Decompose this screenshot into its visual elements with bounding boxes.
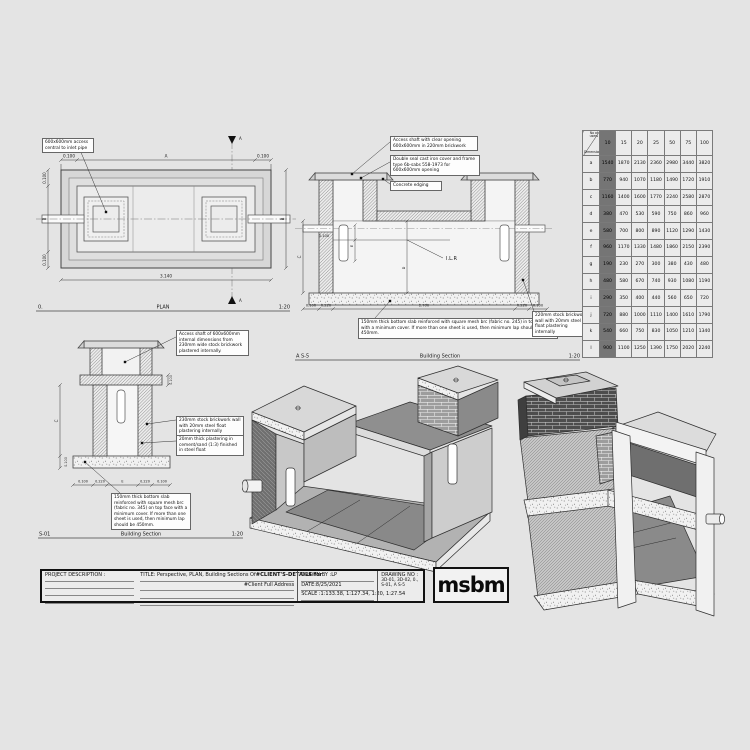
view-title: Building Section xyxy=(420,354,460,360)
table-row: b77094010701180149017201910 xyxy=(583,172,713,189)
section-marker-label: A xyxy=(239,136,242,141)
table-row-label: h xyxy=(583,273,600,290)
dip-pipe-3d xyxy=(448,444,457,484)
dimension-line-left xyxy=(58,383,62,470)
dim-label: C xyxy=(297,255,302,258)
dim-label: 0.220 xyxy=(140,480,150,484)
dimension-line-top xyxy=(59,158,273,170)
table-cell: 740 xyxy=(648,273,664,290)
dim-label: 0.100 xyxy=(169,375,173,385)
table-cell: 1070 xyxy=(632,172,648,189)
table-cell: 1860 xyxy=(664,239,680,256)
table-cell: 800 xyxy=(632,223,648,240)
table-cell: 1340 xyxy=(696,323,712,340)
table-cell: 960 xyxy=(600,239,616,256)
table-row: i290350400440560650720 xyxy=(583,290,713,307)
dim-label: B xyxy=(42,217,47,220)
table-cell: 1190 xyxy=(696,273,712,290)
table-cell: 860 xyxy=(680,206,696,223)
table-column-header: 15 xyxy=(616,131,632,156)
dim-label: D xyxy=(402,266,406,269)
view-title: PLAN xyxy=(156,305,169,311)
table-cell: 1100 xyxy=(616,340,632,357)
logo-text: msbm xyxy=(437,575,504,596)
table-cell: 940 xyxy=(616,172,632,189)
table-cell: 1120 xyxy=(664,223,680,240)
annotation-wall: 230mm stock brickwork wall with 20mm ste… xyxy=(176,416,244,437)
table-cell: 1110 xyxy=(648,307,664,324)
table-cell: 2020 xyxy=(680,340,696,357)
table-cell: 480 xyxy=(696,256,712,273)
sizing-table-grid: No of usersDimensions101520255075100 a15… xyxy=(582,130,713,358)
table-row: k540660750830105012101340 xyxy=(583,323,713,340)
right-wall xyxy=(138,385,152,456)
blank-line xyxy=(45,589,134,596)
table-cell: 670 xyxy=(632,273,648,290)
table-cell: 1400 xyxy=(664,307,680,324)
table-row: e580700800890112012901430 xyxy=(583,223,713,240)
table-cell: 3440 xyxy=(680,156,696,173)
corner-label-users: No of users xyxy=(583,132,598,139)
table-cell: 880 xyxy=(616,307,632,324)
table-cell: 270 xyxy=(632,256,648,273)
corner-label-dimensions: Dimensions xyxy=(584,151,600,154)
annotation-access-shaft: Access shaft with clear opening 600x600m… xyxy=(390,136,478,151)
collar-slab xyxy=(80,375,162,385)
table-column-header: 20 xyxy=(632,131,648,156)
table-cell: 1770 xyxy=(648,189,664,206)
table-cell: 300 xyxy=(648,256,664,273)
table-cell: 2240 xyxy=(696,340,712,357)
table-row-label: c xyxy=(583,189,600,206)
table-cell: 1210 xyxy=(680,323,696,340)
drawing-title: TITLE: Perspective, PLAN, Building Secti… xyxy=(140,572,294,582)
dip-pipe-right xyxy=(500,225,509,261)
view-scale: 1:20 xyxy=(279,305,290,311)
table-cell: 1330 xyxy=(632,239,648,256)
outlet-pipe-3d xyxy=(706,514,725,524)
logo: msbm xyxy=(433,567,509,603)
table-cell: 1910 xyxy=(696,172,712,189)
table-cell: 720 xyxy=(696,290,712,307)
view-ref: 0. xyxy=(38,305,43,311)
table-row: j72088010001110140016101790 xyxy=(583,307,713,324)
table-row-label: j xyxy=(583,307,600,324)
sizing-table-head: No of usersDimensions101520255075100 xyxy=(583,131,713,156)
dip-pipe xyxy=(117,390,125,423)
table-cell: 470 xyxy=(616,206,632,223)
table-cell: 440 xyxy=(648,290,664,307)
table-cell: 1720 xyxy=(680,172,696,189)
dimension-line-bottom xyxy=(71,483,172,487)
annotation-cover: Double seal cast iron cover and frame ty… xyxy=(390,155,480,176)
dim-label: 0.100 xyxy=(64,457,68,467)
dim-label: 3.140 xyxy=(160,274,172,279)
sizing-table: No of usersDimensions101520255075100 a15… xyxy=(582,130,713,358)
table-cell: 1170 xyxy=(616,239,632,256)
table-cell: 1600 xyxy=(632,189,648,206)
table-cell: 1290 xyxy=(680,223,696,240)
dim-label: C xyxy=(54,419,59,422)
dim-label: E xyxy=(121,480,123,484)
dim-label: A xyxy=(165,154,168,159)
table-cell: 580 xyxy=(616,273,632,290)
dim-label: 0.100 xyxy=(306,304,317,308)
table-cell: 1160 xyxy=(600,189,616,206)
dim-label: 0.100 xyxy=(63,154,75,159)
table-cell: 930 xyxy=(664,273,680,290)
section-arrow-icon xyxy=(228,136,236,144)
title-block-title: TITLE: Perspective, PLAN, Building Secti… xyxy=(137,571,297,601)
annotation-bottom-slab: 150mm thick bottom slab reinforced with … xyxy=(111,493,191,530)
left-wall xyxy=(93,385,107,456)
table-cell: 350 xyxy=(616,290,632,307)
title-block-project: PROJECT DESCRIPTION : xyxy=(42,571,137,601)
table-cell: 590 xyxy=(648,206,664,223)
table-row-label: i xyxy=(583,290,600,307)
project-description-label: PROJECT DESCRIPTION : xyxy=(45,572,134,582)
scale: SCALE :1:133.38, 1:127.34, 1:20, 1:27.54 xyxy=(301,591,374,601)
table-row-label: b xyxy=(583,172,600,189)
annotation-access-central: 600x600mm access central to inlet pipe xyxy=(42,138,94,153)
table-cell: 430 xyxy=(680,256,696,273)
cover xyxy=(78,341,164,348)
table-column-header: 100 xyxy=(696,131,712,156)
drawing-title-text: TITLE: Perspective, PLAN, Building Secti… xyxy=(140,572,256,578)
dim-label: 0.100 xyxy=(533,304,544,308)
blank-line xyxy=(140,599,294,606)
table-cell: 540 xyxy=(600,323,616,340)
table-row-label: e xyxy=(583,223,600,240)
dim-label: 0.220 xyxy=(517,304,528,308)
annotation-access-shaft: Access shaft of 600x600mm internal dimen… xyxy=(176,330,249,356)
table-row: g190230270300380430480 xyxy=(583,256,713,273)
table-cell: 750 xyxy=(664,206,680,223)
date: DATE:8/25/2021 xyxy=(301,582,374,592)
dim-label: 0.100 xyxy=(157,480,167,484)
table-cell: 380 xyxy=(600,206,616,223)
table-cell: 1080 xyxy=(680,273,696,290)
table-cell: 1540 xyxy=(600,156,616,173)
client-address: #Client Full Address xyxy=(140,582,294,592)
table-row: h48058067074093010801190 xyxy=(583,273,713,290)
table-column-header: 50 xyxy=(664,131,680,156)
table-row-label: l xyxy=(583,340,600,357)
dimension-line-bottom xyxy=(59,278,273,282)
table-cell: 380 xyxy=(664,256,680,273)
bottom-slab xyxy=(73,456,170,468)
table-cell: 1250 xyxy=(632,340,648,357)
table-row-label: k xyxy=(583,323,600,340)
table-cell: 2390 xyxy=(696,239,712,256)
drawing-sheet: A A 0.100 xyxy=(0,0,750,750)
table-cell: 3820 xyxy=(696,156,712,173)
table-cell: 650 xyxy=(680,290,696,307)
table-cell: 1480 xyxy=(648,239,664,256)
blank-line xyxy=(45,582,134,589)
table-cell: 720 xyxy=(600,307,616,324)
view-ref: A S-5 xyxy=(296,354,309,360)
table-row: l900110012501390175020202240 xyxy=(583,340,713,357)
drawing-no-value: 3D-01, 3D-02, 0., S-01, A S-5 xyxy=(381,578,420,589)
title-block-drawing-no: DRAWING NO : 3D-01, 3D-02, 0., S-01, A S… xyxy=(377,571,423,601)
table-row: a1540187021302360298034403820 xyxy=(583,156,713,173)
blank-line xyxy=(140,591,294,598)
table-cell: 1790 xyxy=(696,307,712,324)
table-row: d380470530590750860960 xyxy=(583,206,713,223)
table-row: f960117013301480186021502390 xyxy=(583,239,713,256)
table-cell: 1430 xyxy=(696,223,712,240)
inlet-pipe-3d xyxy=(242,480,262,492)
perspective-view-2 xyxy=(500,366,740,626)
table-row-label: g xyxy=(583,256,600,273)
table-row-label: f xyxy=(583,239,600,256)
tank-interior xyxy=(333,221,515,293)
table-cell: 2870 xyxy=(696,189,712,206)
table-cell: 530 xyxy=(632,206,648,223)
annotation-bottom-slab: 150mm thick bottom slab reinforced with … xyxy=(358,318,558,339)
table-cell: 900 xyxy=(600,340,616,357)
table-cell: 2130 xyxy=(632,156,648,173)
view-ref: S-01 xyxy=(39,532,50,538)
top-slab xyxy=(377,211,471,221)
table-cell: 830 xyxy=(648,323,664,340)
annotation-edging: Concrete edging xyxy=(390,181,442,191)
table-cell: 1000 xyxy=(632,307,648,324)
table-column-header: 10 xyxy=(600,131,616,156)
table-cell: 1870 xyxy=(616,156,632,173)
annotation-plaster: 20mm thick plastering in cement/sand (1:… xyxy=(176,435,244,456)
dim-label: 0.100 xyxy=(257,154,269,159)
dim-label: 2.700 xyxy=(419,304,430,308)
table-cell: 750 xyxy=(632,323,648,340)
dim-label: 0.100 xyxy=(319,234,330,238)
right-wall xyxy=(515,180,529,293)
dim-label: 0.100 xyxy=(78,480,88,484)
title-block: PROJECT DESCRIPTION : TITLE: Perspective… xyxy=(40,569,425,603)
dimension-line-bottom xyxy=(301,307,549,311)
dim-label: 0.220 xyxy=(321,304,332,308)
table-cell: 960 xyxy=(696,206,712,223)
table-cell: 770 xyxy=(600,172,616,189)
table-column-header: 75 xyxy=(680,131,696,156)
view-scale: 1:20 xyxy=(569,354,580,360)
dip-pipe-3d xyxy=(286,468,295,506)
blank-line xyxy=(45,596,134,603)
dim-label: 0.220 xyxy=(95,480,105,484)
table-column-header: 25 xyxy=(648,131,664,156)
view-title: Building Section xyxy=(121,532,161,538)
table-row-label: a xyxy=(583,156,600,173)
perspective-view-1 xyxy=(242,360,512,575)
table-cell: 480 xyxy=(600,273,616,290)
table-cell: 2150 xyxy=(680,239,696,256)
table-cell: 560 xyxy=(664,290,680,307)
plan-view: A A 0.100 xyxy=(36,128,296,318)
dim-label: 0.100 xyxy=(42,254,47,266)
table-cell: 660 xyxy=(616,323,632,340)
table-cell: 2580 xyxy=(680,189,696,206)
table-cell: 2240 xyxy=(664,189,680,206)
table-cell: 580 xyxy=(600,223,616,240)
sizing-table-body: a1540187021302360298034403820b7709401070… xyxy=(583,156,713,358)
drawn-by: DRAWN BY :LP xyxy=(301,572,374,582)
table-cell: 290 xyxy=(600,290,616,307)
title-block-meta: DRAWN BY :LP DATE:8/25/2021 SCALE :1:133… xyxy=(297,571,377,601)
table-cell: 1750 xyxy=(664,340,680,357)
table-row-label: d xyxy=(583,206,600,223)
table-cell: 700 xyxy=(616,223,632,240)
table-cell: 1180 xyxy=(648,172,664,189)
table-cell: 2980 xyxy=(664,156,680,173)
dim-label: B xyxy=(280,217,285,220)
dip-pipe-left xyxy=(339,225,348,261)
section-arrow-icon xyxy=(228,296,236,304)
table-cell: 1490 xyxy=(664,172,680,189)
table-cell: 890 xyxy=(648,223,664,240)
table-row: c1160140016001770224025802870 xyxy=(583,189,713,206)
table-cell: 1610 xyxy=(680,307,696,324)
table-corner-cell: No of usersDimensions xyxy=(583,131,600,156)
dim-label: 0.100 xyxy=(42,172,47,184)
table-cell: 2360 xyxy=(648,156,664,173)
table-cell: 190 xyxy=(600,256,616,273)
table-cell: 1050 xyxy=(664,323,680,340)
table-cell: 1400 xyxy=(616,189,632,206)
table-cell: 1390 xyxy=(648,340,664,357)
invert-level-label: I.L.R xyxy=(446,256,457,262)
table-cell: 230 xyxy=(616,256,632,273)
table-cell: 400 xyxy=(632,290,648,307)
section-marker-label: A xyxy=(239,298,242,303)
